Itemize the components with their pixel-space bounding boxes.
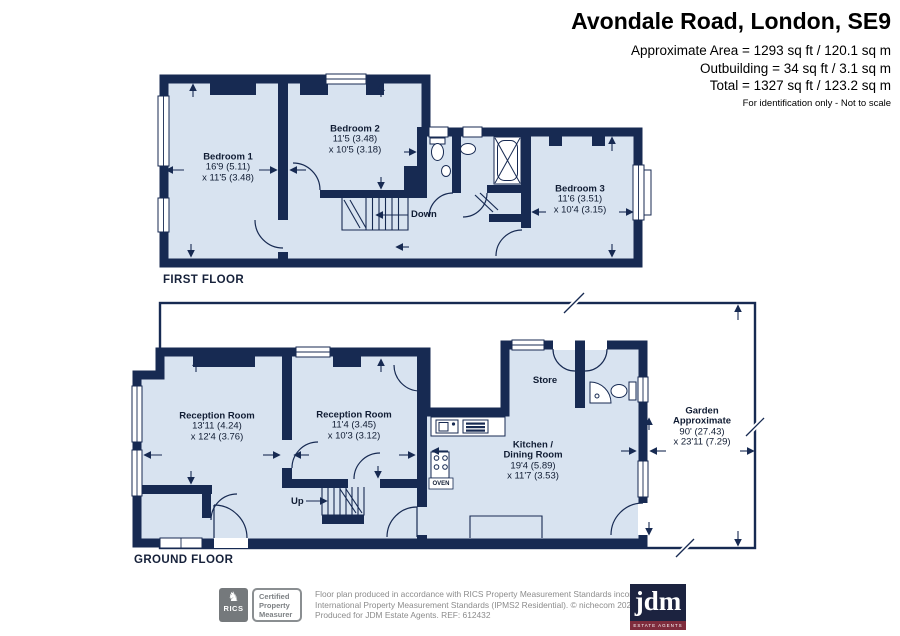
stairs-down-label: Down [411,209,437,220]
first-floor-caption: FIRST FLOOR [163,274,244,286]
room-label-store: Store [533,376,557,386]
window-sill [644,170,651,215]
basin-icon [442,166,451,177]
door-opening [553,340,575,350]
disclaimer-text: Floor plan produced in accordance with R… [315,589,662,621]
ground-floor-caption: GROUND FLOOR [134,554,233,566]
room-label-reception-1: Reception Room 13'11 (4.24) x 12'4 (3.76… [179,412,254,443]
chimney-breast [333,356,361,367]
window [463,127,482,137]
chimney-breast [193,356,255,367]
jdm-estate-agents-logo: jdm ESTATE AGENTS [630,584,686,630]
floorplan-page: Avondale Road, London, SE9 Approximate A… [0,0,900,636]
toilet-icon [432,144,444,161]
rics-crest-icon: ♞ [219,590,248,604]
room-label-garden: Garden Approximate 90' (27.43) x 23'11 (… [673,406,731,447]
room-label-bedroom-2: Bedroom 2 11'5 (3.48) x 10'5 (3.18) [329,125,382,156]
approximate-area: Approximate Area = 1293 sq ft / 120.1 sq… [571,42,891,60]
total-area: Total = 1327 sq ft / 123.2 sq m [571,77,891,95]
stairs-up-label: Up [291,496,304,507]
room-label-bedroom-1: Bedroom 1 16'9 (5.11) x 11'5 (3.48) [202,153,254,184]
toilet-cistern [629,382,636,400]
room-label-kitchen-dining: Kitchen / Dining Room 19'4 (5.89) x 11'7… [503,440,562,481]
chimney-breast [210,83,256,95]
identification-note: For identification only - Not to scale [571,98,891,109]
header-block: Avondale Road, London, SE9 Approximate A… [571,8,891,109]
rics-certified-badge: Certified Property Measurer [252,588,302,622]
door-opening [638,503,648,535]
basin-icon [461,144,476,155]
rics-logo: ♞ RICS [219,588,248,622]
room-label-reception-2: Reception Room 11'4 (3.45) x 10'3 (3.12) [316,411,391,442]
window [429,127,448,137]
door-opening [585,340,607,350]
page-title: Avondale Road, London, SE9 [571,8,891,35]
room-label-bedroom-3: Bedroom 3 11'6 (3.51) x 10'4 (3.15) [554,185,607,216]
door-opening [214,538,248,548]
toilet-icon [611,385,627,398]
oven-label: OVEN [432,481,449,487]
outbuilding-area: Outbuilding = 34 sq ft / 3.1 sq m [571,60,891,78]
ground-floor-plan [132,340,648,548]
